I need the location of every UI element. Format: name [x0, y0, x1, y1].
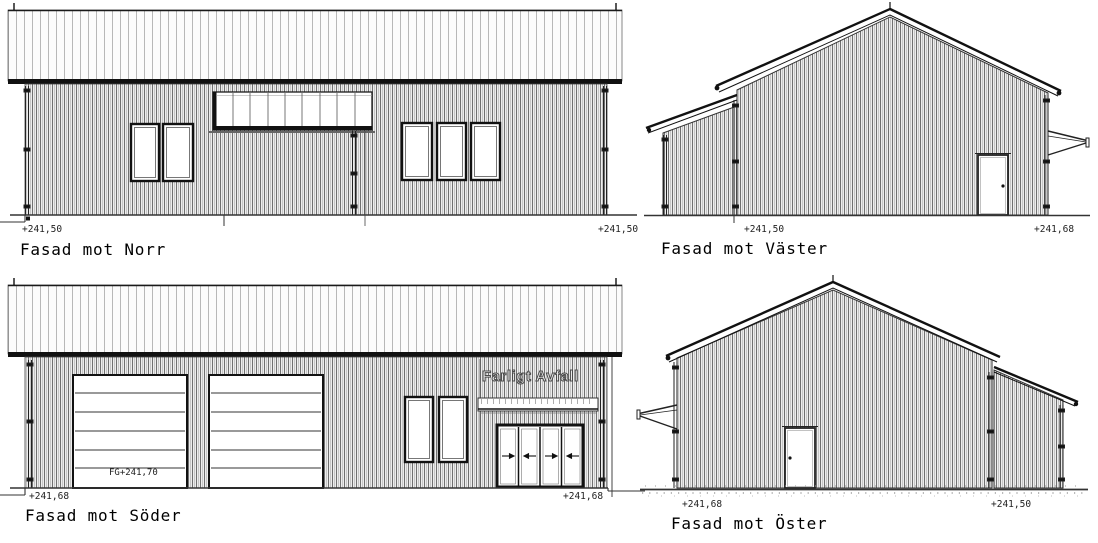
west-leanto-wall — [663, 106, 737, 215]
elevation-mark: +241,68 — [1034, 224, 1074, 235]
elevation-mark: +241,50 — [598, 224, 638, 235]
door-handle — [788, 456, 791, 459]
door-handle — [1001, 184, 1004, 187]
elevation-mark: +241,50 — [22, 224, 62, 235]
elevation-drawings-canvas — [0, 0, 1098, 543]
elevation-mark: +241,50 — [991, 499, 1031, 510]
south-roof — [8, 278, 622, 357]
facade-west-drawing — [644, 2, 1090, 223]
drawing-sheet: +241,50 +241,50 Fasad mot Norr +241,50 +… — [0, 0, 1098, 543]
facade-north-drawing — [0, 3, 637, 226]
facade-east-drawing — [637, 275, 1088, 496]
floor-level-label: FG+241,70 — [109, 468, 158, 478]
east-leanto-wall — [994, 370, 1063, 488]
window — [437, 123, 466, 180]
east-main-wall — [677, 290, 992, 488]
east-door — [782, 427, 818, 489]
elevation-mark: +241,68 — [29, 491, 69, 502]
east-side-canopy — [637, 405, 677, 429]
facade-south-drawing — [0, 278, 645, 497]
north-window-pair — [131, 124, 193, 181]
west-ground-line — [644, 215, 1090, 223]
elevation-mark: +241,68 — [563, 491, 603, 502]
window — [405, 397, 433, 462]
facade-title-north: Fasad mot Norr — [20, 240, 166, 259]
facade-title-west: Fasad mot Väster — [661, 239, 828, 258]
facade-title-south: Fasad mot Söder — [25, 506, 182, 525]
window — [163, 124, 193, 181]
garage-door — [209, 375, 323, 488]
west-side-canopy — [1048, 131, 1089, 155]
south-ground-line — [0, 488, 645, 495]
window — [131, 124, 159, 181]
north-clerestory-window — [209, 92, 375, 132]
north-roof — [8, 3, 622, 84]
north-window-trio — [402, 123, 500, 180]
elevation-mark: +241,50 — [744, 224, 784, 235]
entrance-canopy — [478, 398, 598, 413]
facade-title-east: Fasad mot Öster — [671, 514, 828, 533]
window — [471, 123, 500, 180]
folding-entrance-door — [497, 425, 583, 487]
hazardous-waste-sign: Farligt Avfall — [482, 368, 579, 385]
window — [439, 397, 467, 462]
west-door — [975, 154, 1011, 216]
elevation-mark: +241,68 — [682, 499, 722, 510]
window — [402, 123, 432, 180]
